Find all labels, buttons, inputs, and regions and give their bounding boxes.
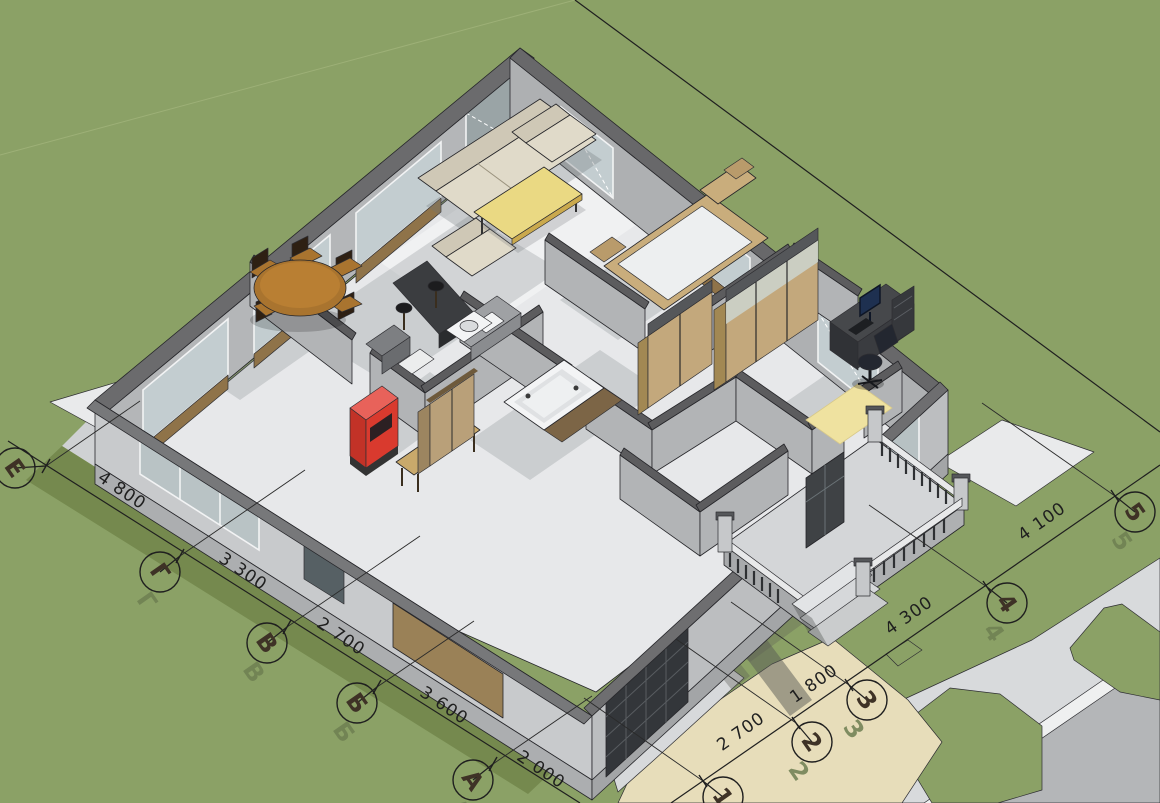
bar-stool	[396, 303, 412, 313]
wardrobe-side	[638, 336, 648, 415]
chair-seat	[858, 354, 882, 370]
newel-post	[718, 516, 732, 552]
sink-basin	[460, 321, 478, 332]
newel-post	[868, 410, 882, 442]
3d-model-viewport[interactable]: 4 800 3 300 2 700 3 600 2 000 2 700 1 80…	[0, 0, 1160, 803]
tub-jet	[526, 394, 531, 399]
tub-jet	[574, 386, 579, 391]
cabinet-side	[418, 404, 430, 474]
dining-table-top	[260, 262, 340, 308]
scene-svg: 4 800 3 300 2 700 3 600 2 000 2 700 1 80…	[0, 0, 1160, 803]
newel-post	[856, 562, 870, 596]
bar-stool	[428, 281, 444, 291]
wardrobe-side	[714, 302, 726, 390]
